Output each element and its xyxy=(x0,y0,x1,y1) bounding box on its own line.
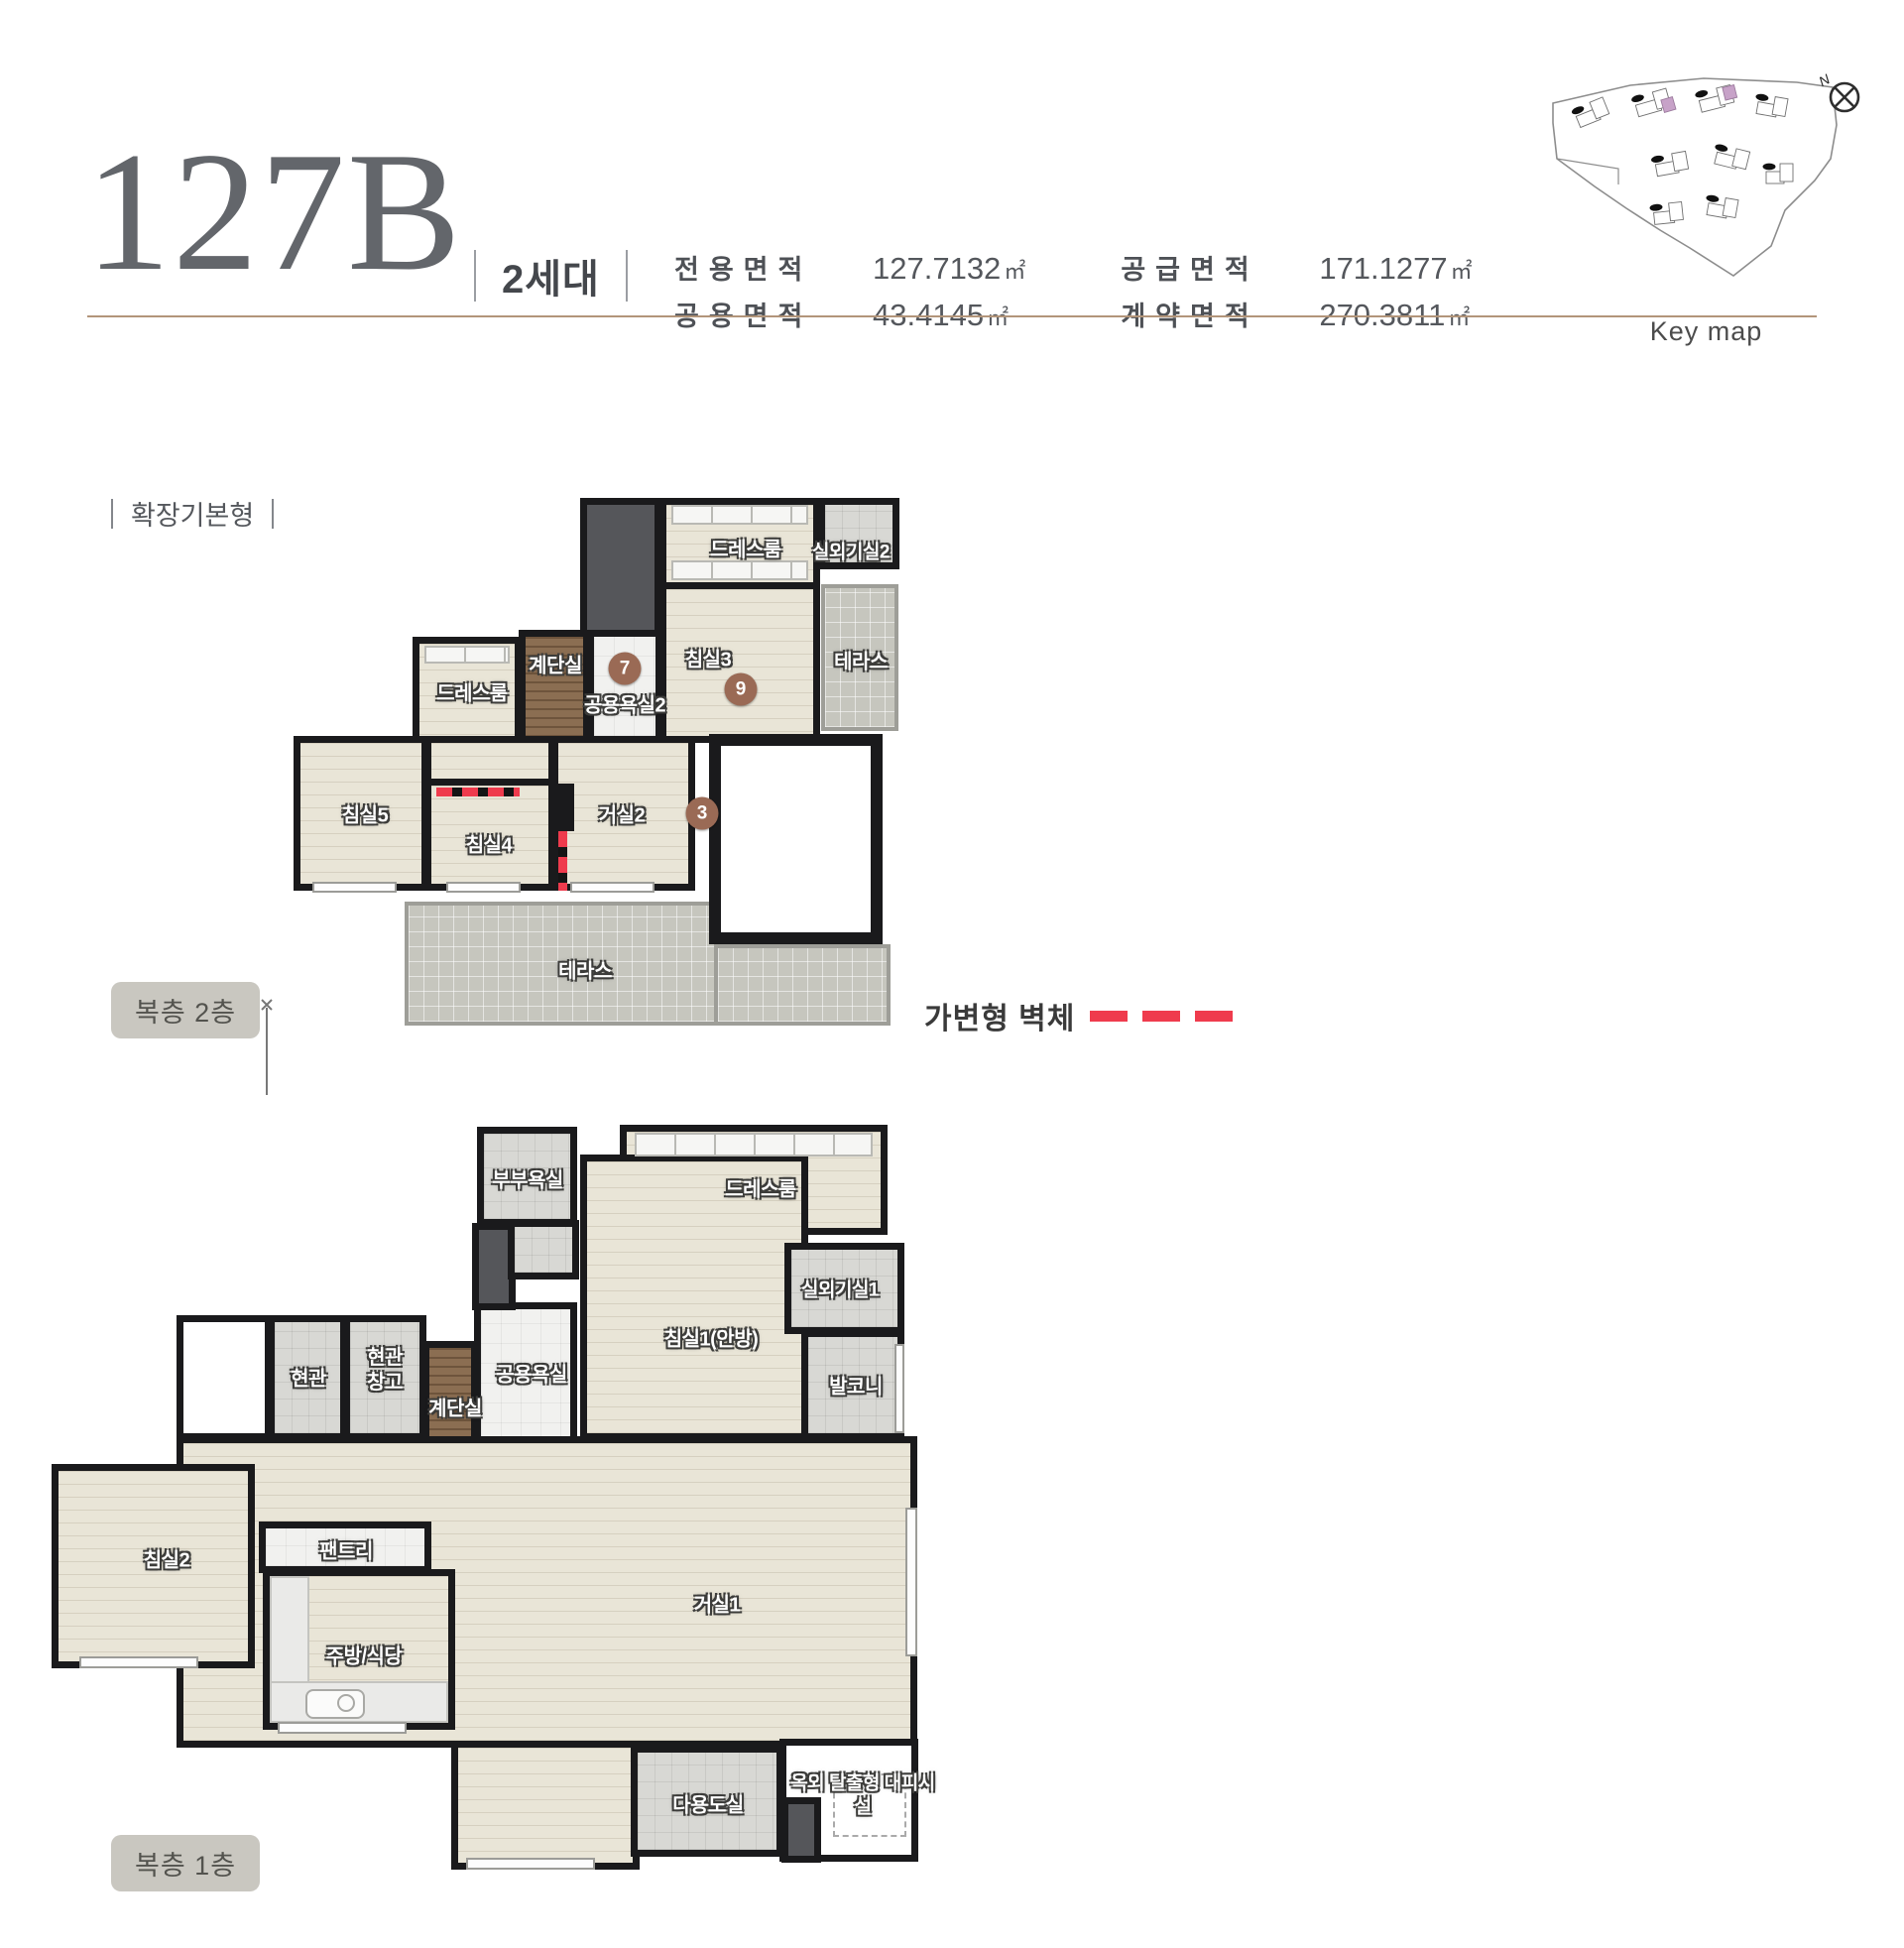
label-entrance-storage: 현관창고 xyxy=(359,1346,411,1396)
marker-7: 7 xyxy=(609,653,642,685)
room-terrace-bottom-ext-2f xyxy=(714,944,891,1026)
closet-strip xyxy=(671,505,808,525)
household-label: 2세대 xyxy=(502,247,600,304)
marker-9: 9 xyxy=(725,673,758,706)
room-stairwell-2f xyxy=(519,630,590,743)
label-entrance: 현관 xyxy=(291,1363,326,1392)
label-shared-bath-1f: 공용욕실 xyxy=(496,1359,567,1388)
room-bedroom3 xyxy=(659,582,820,743)
floorplan-duplex-1f: 부부욕실 드레스룸 침실1(안방) 실외기실1 발코니 현관 현관창고 계단실 … xyxy=(40,1091,932,1914)
room-shared-bath2 xyxy=(587,630,662,743)
label-outdoor-unit2: 실외기실2 xyxy=(812,538,890,564)
window xyxy=(446,882,521,893)
closet-strip xyxy=(635,1133,873,1157)
exterior-void-1f xyxy=(177,1315,272,1440)
label-outdoor-unit1: 실외기실1 xyxy=(801,1276,879,1302)
closet-strip xyxy=(424,646,510,664)
window xyxy=(79,1656,198,1668)
label-utility: 다용도실 xyxy=(672,1789,744,1818)
label-bedroom1: 침실1(안방) xyxy=(664,1323,759,1352)
legend-dash xyxy=(1142,1011,1180,1022)
label-kitchen-dining: 주방/식당 xyxy=(326,1641,403,1669)
floorplan-page: 127B 2세대 전용면적 127.7132 ㎡ 공급면적 171.1277 ㎡… xyxy=(0,0,1904,1948)
label-pantry: 팬트리 xyxy=(319,1535,373,1564)
movable-wall-legend: 가변형 벽체 xyxy=(924,994,1233,1037)
kitchen-sink xyxy=(305,1689,365,1719)
label-stairwell-2f: 계단실 xyxy=(529,650,582,678)
label-shared-bath2: 공용욕실2 xyxy=(584,689,665,718)
wall-stub xyxy=(552,784,574,831)
label-evacuation: 옥외 탈출형 대피시설 xyxy=(788,1771,937,1819)
window xyxy=(312,882,397,893)
divider-bar-left xyxy=(474,250,476,302)
flag-marker-icon xyxy=(258,996,276,1095)
room-master-wc xyxy=(508,1220,579,1279)
household-count: 2세대 xyxy=(474,246,628,305)
spec-common-area: 공용면적 43.4145 ㎡ xyxy=(674,295,1025,333)
legend-dash xyxy=(1195,1011,1233,1022)
plan-type-label: 확장기본형 xyxy=(111,494,274,533)
window xyxy=(570,882,654,893)
movable-wall-horizontal xyxy=(436,788,520,796)
spec-contract-area: 계약면적 270.3811 ㎡ xyxy=(1121,295,1472,333)
keymap-site-plan: N xyxy=(1535,61,1877,309)
label-terrace-bottom-2f: 테라스 xyxy=(558,955,612,984)
label-dressroom-left-2f: 드레스룸 xyxy=(436,677,508,706)
room-rear-hall-1f xyxy=(451,1741,640,1870)
movable-wall-vertical xyxy=(558,831,567,891)
label-bedroom5: 침실5 xyxy=(342,799,388,828)
label-dressroom-top-2f: 드레스룸 xyxy=(710,534,781,562)
window xyxy=(894,1344,904,1433)
badge-duplex-1f: 복층 1층 xyxy=(111,1835,260,1891)
open-void-2f xyxy=(709,734,883,944)
keymap-caption: Key map xyxy=(1535,316,1877,347)
spec-supply-area: 공급면적 171.1277 ㎡ xyxy=(1121,248,1472,287)
movable-wall-legend-label: 가변형 벽체 xyxy=(924,994,1075,1037)
label-terrace-right-2f: 테라스 xyxy=(834,646,888,674)
spec-exclusive-area: 전용면적 127.7132 ㎡ xyxy=(674,248,1025,287)
label-living2: 거실2 xyxy=(599,799,645,828)
marker-3: 3 xyxy=(686,797,719,830)
label-bedroom3: 침실3 xyxy=(685,644,731,672)
badge-duplex-2f: 복층 2층 xyxy=(111,982,260,1038)
label-bedroom2: 침실2 xyxy=(144,1544,189,1573)
label-living1: 거실1 xyxy=(694,1589,740,1618)
unit-code-title: 127B xyxy=(85,127,463,298)
label-balcony: 발코니 xyxy=(829,1371,883,1400)
keymap: N Key map xyxy=(1535,61,1877,347)
area-spec-table: 전용면적 127.7132 ㎡ 공급면적 171.1277 ㎡ 공용면적 43.… xyxy=(674,248,1473,333)
divider-bar-right xyxy=(626,250,628,302)
floorplan-duplex-2f: 드레스룸 실외기실2 테라스 침실3 공용욕실2 계단실 드레스룸 침실5 침실… xyxy=(278,493,952,1053)
legend-dash xyxy=(1090,1011,1128,1022)
label-master-bath: 부부욕실 xyxy=(492,1164,563,1193)
window xyxy=(278,1722,407,1734)
window xyxy=(466,1858,595,1870)
label-bedroom4: 침실4 xyxy=(466,829,512,858)
window xyxy=(905,1508,917,1656)
label-dressroom-1f: 드레스룸 xyxy=(725,1173,796,1202)
label-stairwell-1f: 계단실 xyxy=(428,1393,482,1421)
closet-strip xyxy=(671,560,808,580)
